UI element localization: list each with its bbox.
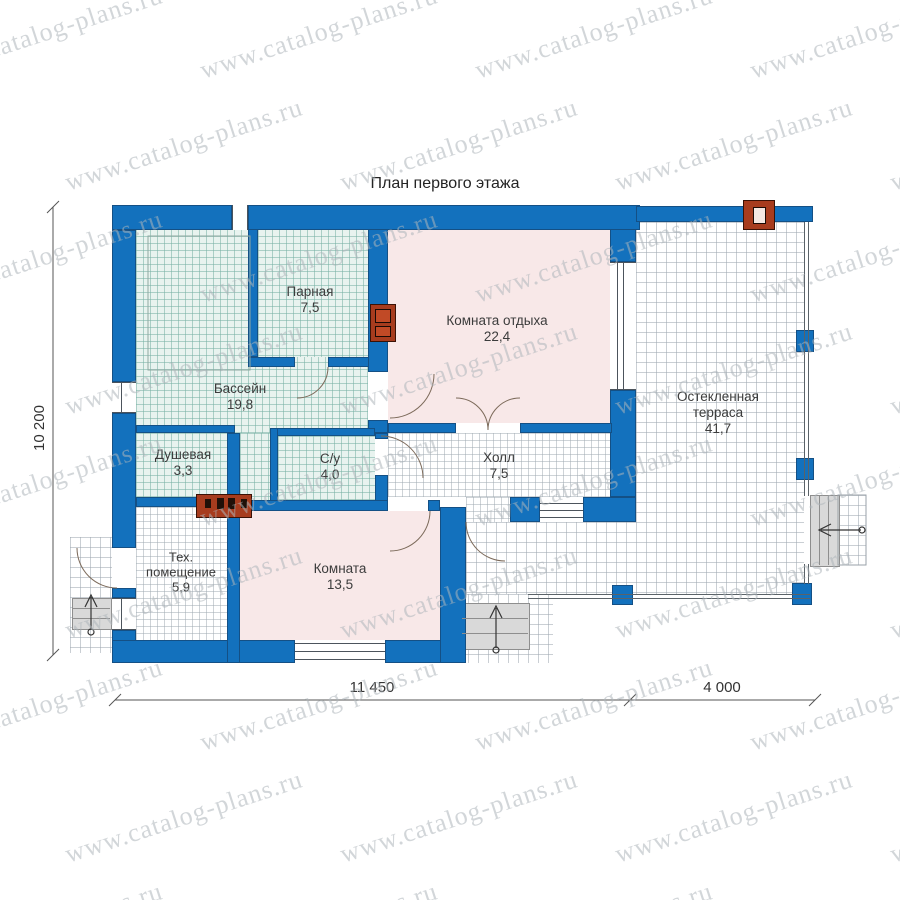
room-name: Парная [287, 284, 334, 300]
room-area: 7,5 [287, 300, 334, 316]
page-title: План первого этажа [371, 175, 520, 193]
room-name: Комната [314, 561, 367, 577]
door-arcs [77, 367, 520, 588]
room-name: Холл [483, 450, 515, 466]
room-name: Душевая [155, 447, 211, 463]
plan-annotations [0, 0, 900, 900]
dimension-bottom-terrace: 4 000 [703, 680, 741, 696]
room-name: помещение [146, 565, 216, 580]
room-area: 7,5 [483, 466, 515, 482]
room-name: Тех. [146, 550, 216, 565]
room-label-otdyha: Комната отдыха 22,4 [446, 313, 547, 345]
room-area: 4,0 [320, 467, 340, 483]
dimension-left: 10 200 [32, 405, 48, 451]
room-name: терраса [677, 405, 759, 421]
room-area: 3,3 [155, 463, 211, 479]
room-label-bassein: Бассейн 19,8 [214, 381, 266, 413]
floorplan-page: План первого этажа Парная 7,5 Бассейн 19… [0, 0, 900, 900]
room-area: 5,9 [146, 580, 216, 595]
room-name: Остекленная [677, 389, 759, 405]
room-area: 41,7 [677, 421, 759, 437]
room-label-dushevaya: Душевая 3,3 [155, 447, 211, 479]
room-label-su: С/у 4,0 [320, 451, 340, 483]
pool-basin-outline [148, 236, 250, 370]
room-area: 22,4 [446, 329, 547, 345]
dimension-bottom-main: 11 450 [350, 680, 395, 696]
room-label-komnata: Комната 13,5 [314, 561, 367, 593]
room-label-terrasa: Остекленная терраса 41,7 [677, 389, 759, 437]
room-label-holl: Холл 7,5 [483, 450, 515, 482]
terrace-glazing [528, 222, 810, 599]
room-label-parnaya: Парная 7,5 [287, 284, 334, 316]
room-name: Бассейн [214, 381, 266, 397]
room-label-teh: Тех. помещение 5,9 [146, 550, 216, 595]
room-area: 19,8 [214, 397, 266, 413]
room-name: Комната отдыха [446, 313, 547, 329]
room-name: С/у [320, 451, 340, 467]
room-area: 13,5 [314, 577, 367, 593]
